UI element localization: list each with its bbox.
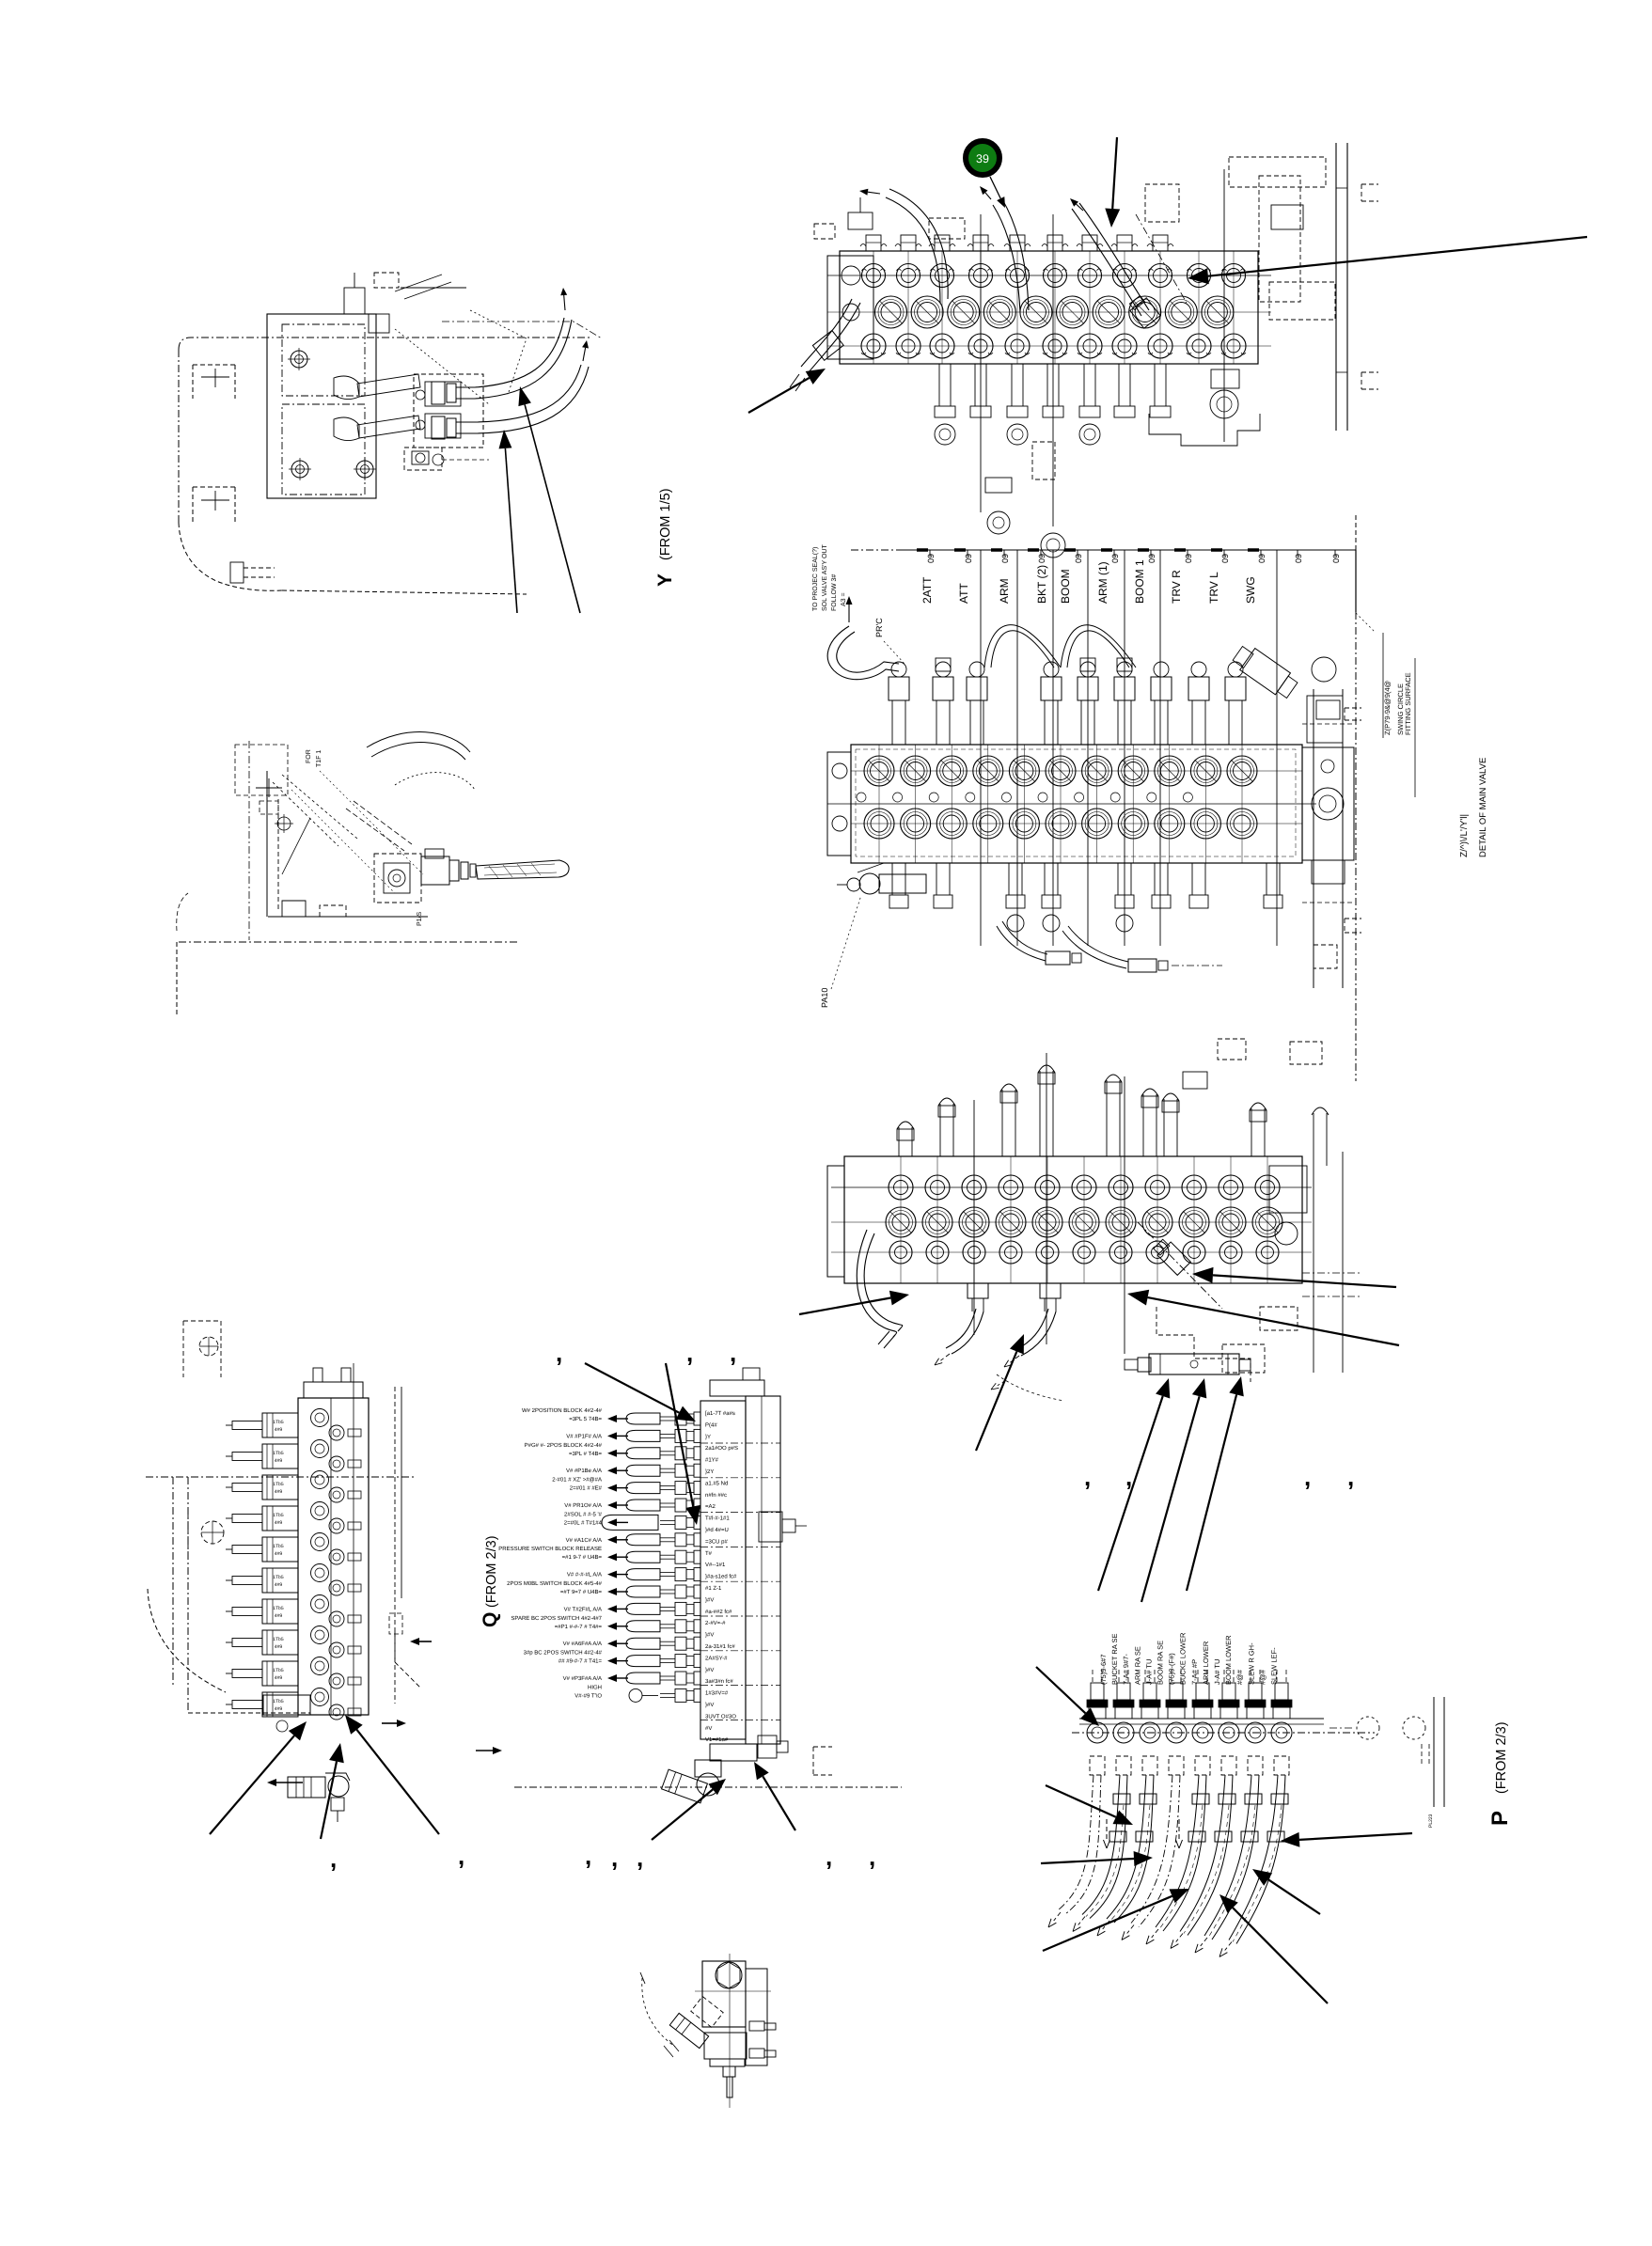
svg-text:}#V: }#V (705, 1596, 714, 1603)
svg-text:BOOM 1: BOOM 1 (1133, 559, 1146, 604)
svg-text:J-A# TU: J-A# TU (1144, 1659, 1153, 1685)
svg-text:FOR: FOR (306, 749, 312, 763)
svg-text:7-A# #P: 7-A# #P (1190, 1659, 1199, 1685)
svg-text:BOOM: BOOM (1059, 569, 1072, 604)
svg-text:SLEW R GH-: SLEW R GH- (1247, 1642, 1255, 1685)
svg-text:3#p BC 2POS SWITCH 4#2-4#: 3#p BC 2POS SWITCH 4#2-4# (524, 1650, 603, 1657)
svg-text:09: 09 (1000, 554, 1010, 563)
svg-text:TO PROJEC SEAL(?): TO PROJEC SEAL(?) (811, 547, 819, 611)
svg-text:,: , (826, 1843, 832, 1871)
svg-text:#1Y#: #1Y# (705, 1457, 719, 1464)
svg-text:,: , (1125, 1463, 1132, 1491)
svg-text:W# 2POSITION BLOCK 4#2-4#: W# 2POSITION BLOCK 4#2-4# (522, 1407, 603, 1414)
svg-text:TRV R: TRV R (1170, 570, 1183, 604)
svg-text:SWG: SWG (1244, 576, 1257, 604)
svg-text:a1.#5 Nd: a1.#5 Nd (705, 1480, 728, 1486)
svg-text:2=#01 # #E#: 2=#01 # #E# (570, 1485, 603, 1492)
svg-text:ARM: ARM (998, 578, 1011, 604)
svg-text:2A#SY-#: 2A#SY-# (705, 1655, 728, 1661)
svg-text:=#T 9=7 # U4B=: =#T 9=7 # U4B= (560, 1589, 603, 1595)
svg-text:,: , (1304, 1463, 1311, 1491)
svg-text:}#V: }#V (705, 1702, 714, 1708)
svg-text:09: 09 (1331, 554, 1341, 563)
svg-text:## #9-#-7 # T41=: ## #9-#-7 # T41= (559, 1658, 603, 1665)
svg-text:V# #-#-#L A/A: V# #-#-#L A/A (567, 1572, 602, 1578)
svg-text:FITTING SURFACE: FITTING SURFACE (1404, 672, 1412, 735)
svg-text:2a-31#1 fc#: 2a-31#1 fc# (705, 1643, 735, 1650)
svg-text:7-A# 9#7-: 7-A# 9#7- (1122, 1654, 1130, 1685)
svg-text:39: 39 (976, 152, 989, 165)
svg-text:,: , (686, 1339, 693, 1367)
svg-text:=3PL 5 74B=: =3PL 5 74B= (569, 1416, 602, 1422)
svg-text:Z(P79-9&@9(4@: Z(P79-9&@9(4@ (1383, 681, 1392, 735)
svg-text:PA10: PA10 (820, 988, 829, 1008)
svg-text:P: P (1487, 1811, 1513, 1826)
svg-text:}#a-s1ed fc#: }#a-s1ed fc# (705, 1574, 737, 1580)
svg-text:1#3#V=#: 1#3#V=# (705, 1690, 729, 1697)
svg-text:DETAIL OF MAIN VALVE: DETAIL OF MAIN VALVE (1478, 758, 1488, 857)
svg-text:1Tb5: 1Tb5 (273, 1606, 284, 1611)
svg-text:4#9: 4#9 (275, 1644, 283, 1650)
svg-text:09: 09 (1037, 554, 1046, 563)
svg-text:T#: T# (705, 1550, 713, 1557)
svg-text:2-#01 # XZ' >#@#A: 2-#01 # XZ' >#@#A (552, 1477, 602, 1484)
svg-text:Y: Y (654, 573, 676, 587)
svg-text:3a#3#n fc#: 3a#3#n fc# (705, 1678, 733, 1685)
svg-text:,: , (730, 1339, 736, 1367)
svg-text:1Tb5: 1Tb5 (273, 1668, 284, 1673)
svg-text:1Tb5: 1Tb5 (273, 1544, 284, 1549)
svg-text:[a1-7T #a#s: [a1-7T #a#s (705, 1410, 735, 1417)
svg-text:#a-##2 fc#: #a-##2 fc# (705, 1609, 732, 1615)
svg-text:(FROM 2/3): (FROM 2/3) (484, 1535, 499, 1608)
svg-text:}#V: }#V (705, 1632, 714, 1639)
svg-text:4#9: 4#9 (275, 1551, 283, 1557)
svg-text:HIGH: HIGH (588, 1684, 602, 1690)
svg-text:BOOM RA SE: BOOM RA SE (1156, 1641, 1165, 1685)
svg-text:4#9: 4#9 (275, 1582, 283, 1588)
svg-text:2POS M0BL SWITCH BLOCK 4#5-4#: 2POS M0BL SWITCH BLOCK 4#5-4# (507, 1580, 602, 1587)
svg-text:,: , (1347, 1463, 1354, 1491)
svg-text:BUCKET RA SE: BUCKET RA SE (1110, 1634, 1119, 1685)
svg-text:4#9: 4#9 (275, 1427, 283, 1433)
svg-text:#@#: #@# (1235, 1669, 1244, 1685)
svg-text:Z/^)\/L'/Y'l|: Z/^)\/L'/Y'l| (1459, 814, 1470, 857)
svg-text:FOLLOW 3#: FOLLOW 3# (831, 574, 838, 611)
svg-text:n#fn ##c: n#fn ##c (705, 1492, 727, 1499)
svg-text:V#--1#1: V#--1#1 (705, 1562, 726, 1568)
svg-text:V# #P1Be A/A: V# #P1Be A/A (566, 1468, 602, 1474)
svg-text:,: , (637, 1844, 643, 1872)
svg-text:4#9: 4#9 (275, 1458, 283, 1464)
svg-text:ARM LOWER: ARM LOWER (1202, 1641, 1210, 1685)
svg-text:BOOM LOWER: BOOM LOWER (1224, 1635, 1233, 1685)
svg-text:PL223: PL223 (1428, 1814, 1434, 1828)
svg-text:SOL VALVE AS'Y OUT: SOL VALVE AS'Y OUT (822, 544, 828, 611)
svg-text:=#P1 #-#-7 # T4#=: =#P1 #-#-7 # T4#= (555, 1624, 603, 1630)
svg-text:1Tb5: 1Tb5 (273, 1575, 284, 1580)
svg-text:BKT (2): BKT (2) (1035, 565, 1048, 604)
svg-text:09: 09 (1147, 554, 1156, 563)
svg-text:V# #P3F#A A/A: V# #P3F#A A/A (563, 1675, 602, 1682)
svg-text:1Tb5: 1Tb5 (273, 1482, 284, 1487)
svg-text:1Tb5: 1Tb5 (273, 1451, 284, 1456)
svg-text:1Tb5: 1Tb5 (273, 1420, 284, 1425)
svg-text:V# #A6F#A A/A: V# #A6F#A A/A (563, 1641, 602, 1647)
svg-text:PR'C: PR'C (874, 618, 884, 637)
svg-text:BUCKE LOWER: BUCKE LOWER (1179, 1632, 1188, 1685)
svg-text:2=#0L # T#1#4: 2=#0L # T#1#4 (564, 1519, 603, 1526)
svg-text:3UVT O#3O: 3UVT O#3O (705, 1713, 736, 1720)
svg-text:,: , (458, 1842, 464, 1870)
svg-text:}Y: }Y (705, 1434, 711, 1440)
svg-text:V1=#1a#: V1=#1a# (705, 1736, 729, 1743)
svg-text:V#-#9 T'\O: V#-#9 T'\O (574, 1692, 602, 1699)
svg-text:1Tb5: 1Tb5 (273, 1637, 284, 1642)
svg-text:09: 09 (1257, 554, 1267, 563)
svg-text:P#G# #- 2POS BLOCK 4#2-4#: P#G# #- 2POS BLOCK 4#2-4# (525, 1442, 603, 1449)
svg-text:Q: Q (480, 1612, 501, 1627)
svg-text:2#SOL # #-5 '#: 2#SOL # #-5 '# (564, 1511, 603, 1517)
svg-text:1Tb5: 1Tb5 (273, 1699, 284, 1704)
svg-text:=A2: =A2 (705, 1503, 716, 1510)
svg-text:P(4#: P(4# (705, 1421, 717, 1428)
svg-text:V# T#2F#L A/A: V# T#2F#L A/A (564, 1606, 602, 1612)
svg-text:(FROM 1/5): (FROM 1/5) (658, 488, 673, 560)
svg-text:(FROM 2/3): (FROM 2/3) (1494, 1721, 1509, 1794)
svg-text:PRESSURE SWITCH BLOCK RELEASE: PRESSURE SWITCH BLOCK RELEASE (498, 1546, 602, 1552)
svg-text:,: , (556, 1339, 562, 1367)
svg-text:4#9: 4#9 (275, 1613, 283, 1619)
svg-text:4#9: 4#9 (275, 1675, 283, 1681)
svg-text:ATT: ATT (957, 583, 970, 604)
svg-text:,: , (585, 1842, 591, 1870)
svg-text:,: , (330, 1845, 337, 1873)
svg-text:09: 09 (1110, 554, 1120, 563)
svg-text:09: 09 (1184, 554, 1193, 563)
svg-text:09: 09 (1220, 554, 1230, 563)
svg-text:2-#V=-#: 2-#V=-# (705, 1620, 726, 1626)
svg-text:,: , (1084, 1463, 1091, 1491)
svg-text:P1/S: P1/S (416, 911, 423, 926)
svg-text:(75)9-6#7: (75)9-6#7 (1099, 1654, 1108, 1685)
svg-text:T1F 1: T1F 1 (316, 750, 323, 767)
svg-text:}#V: }#V (705, 1667, 714, 1673)
svg-text:V# PR1O# A/A: V# PR1O# A/A (564, 1502, 602, 1509)
svg-text:4#9: 4#9 (275, 1520, 283, 1526)
svg-text:ARM RA SE: ARM RA SE (1133, 1646, 1141, 1685)
svg-text:09: 09 (1074, 554, 1083, 563)
svg-text:}2Y: }2Y (705, 1469, 714, 1475)
svg-text:T#l-#-1#1: T#l-#-1#1 (705, 1516, 730, 1522)
svg-text:SPARE BC 2POS SWITCH 4#2-4#7: SPARE BC 2POS SWITCH 4#2-4#7 (511, 1615, 602, 1622)
svg-text:ARM (1): ARM (1) (1096, 561, 1109, 604)
svg-text:,: , (611, 1844, 618, 1872)
svg-text:4#9: 4#9 (275, 1706, 283, 1712)
svg-text:V# #A1C# A/A: V# #A1C# A/A (566, 1537, 602, 1544)
svg-text:2a1#OO p#S: 2a1#OO p#S (705, 1445, 738, 1452)
svg-text:09: 09 (964, 554, 973, 563)
svg-text:2ATT: 2ATT (920, 576, 934, 604)
svg-text:09: 09 (926, 554, 936, 563)
svg-text:#1 Z-1: #1 Z-1 (705, 1585, 722, 1592)
svg-text:}#d 4#=U: }#d 4#=U (705, 1527, 729, 1533)
svg-text:=#1 9-7 # U4B=: =#1 9-7 # U4B= (562, 1554, 603, 1561)
svg-text:4#9: 4#9 (275, 1489, 283, 1495)
svg-text:V# #P1F# A/A: V# #P1F# A/A (566, 1433, 602, 1439)
svg-text:#V: #V (705, 1725, 712, 1732)
svg-text:,: , (869, 1843, 875, 1871)
svg-text:TRV L: TRV L (1207, 572, 1220, 604)
svg-text:J-A# TU: J-A# TU (1213, 1659, 1221, 1685)
svg-text:=3PL # T4B=: =3PL # T4B= (569, 1451, 603, 1457)
svg-text:09: 09 (1294, 554, 1303, 563)
svg-text:=3CU p#: =3CU p# (705, 1538, 729, 1545)
svg-text:1Tb5: 1Tb5 (273, 1513, 284, 1518)
